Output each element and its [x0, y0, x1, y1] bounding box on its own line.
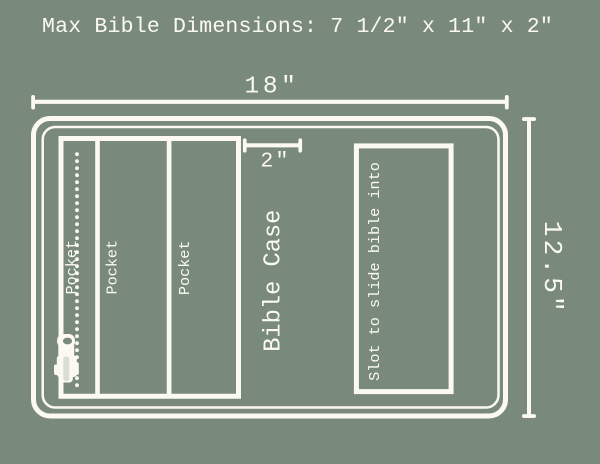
svg-text:Max Bible Dimensions: 7 1/2" x: Max Bible Dimensions: 7 1/2" x 11" x 2": [42, 15, 553, 39]
svg-text:Pocket: Pocket: [104, 240, 122, 295]
svg-text:Pocket: Pocket: [176, 240, 194, 295]
svg-text:2": 2": [260, 150, 290, 174]
svg-text:12.5": 12.5": [537, 221, 567, 315]
svg-text:Bible Case: Bible Case: [261, 210, 288, 352]
svg-text:18": 18": [245, 74, 300, 101]
svg-text:Slot to slide bible into: Slot to slide bible into: [366, 162, 384, 381]
svg-text:Pocket: Pocket: [63, 240, 81, 295]
